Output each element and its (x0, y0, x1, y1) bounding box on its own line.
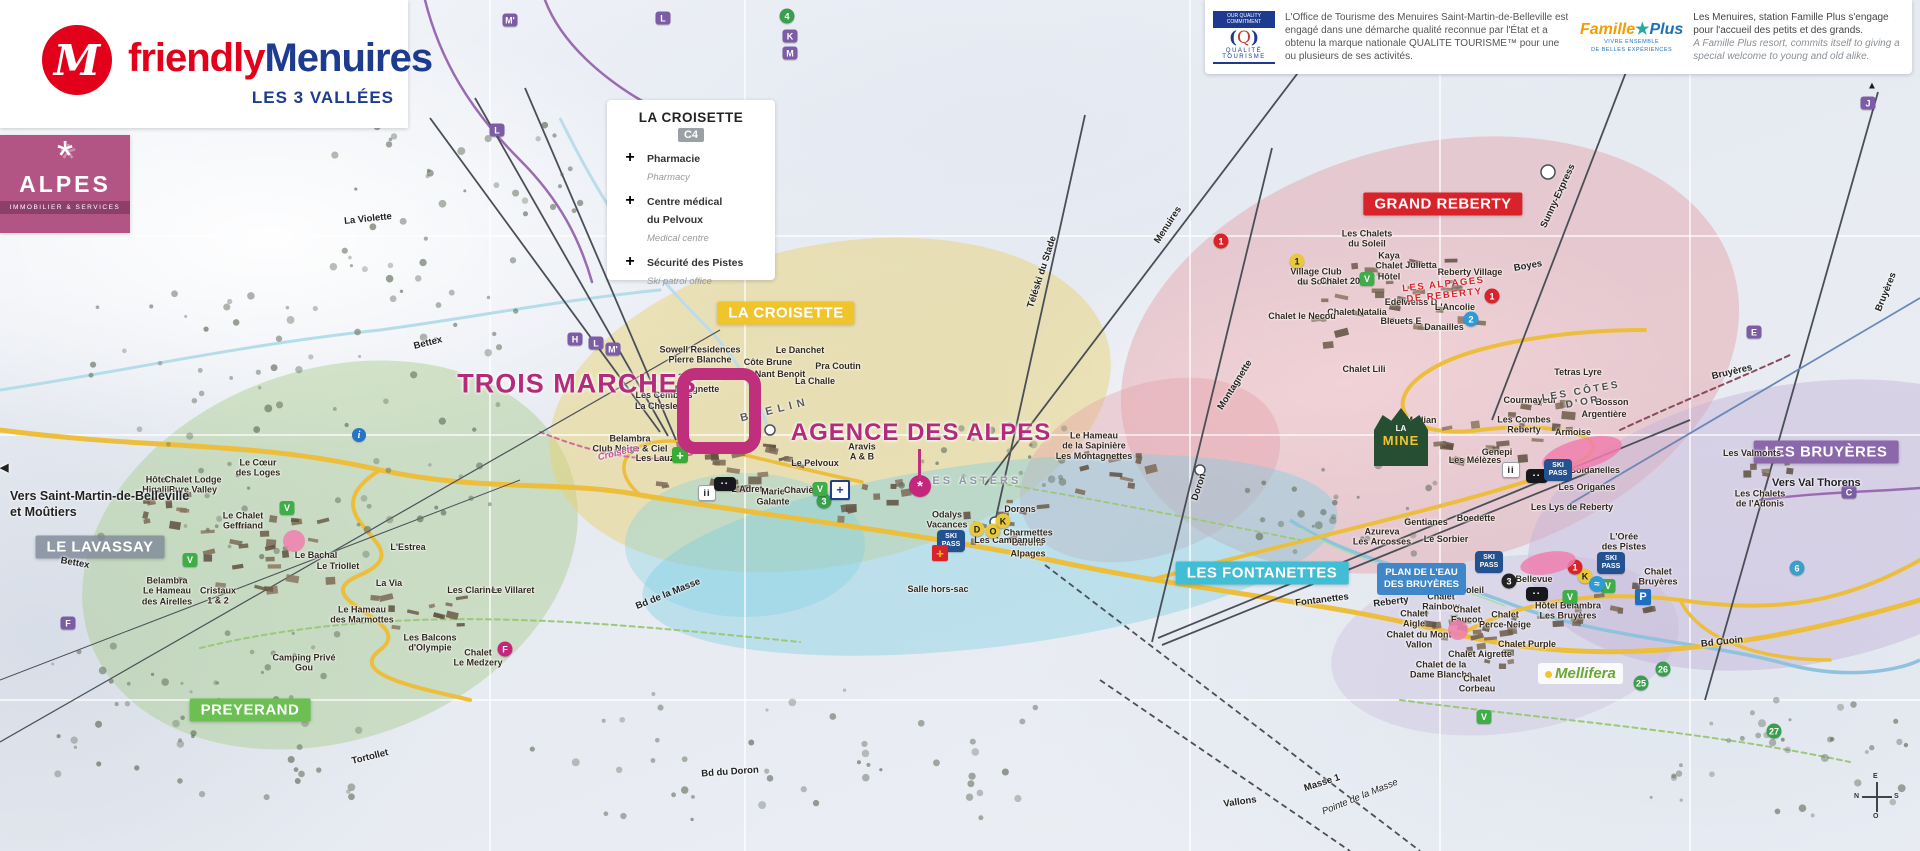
grid-ref-badge: C4 (678, 128, 704, 142)
legend-item-label-fr: Sécurité des Pistes (647, 257, 743, 269)
left-arrow-icon: ◀ (0, 462, 8, 476)
mellifera-logo: Mellifera (1538, 663, 1623, 684)
famille-plus-text-en: A Famille Plus resort, commits itself to… (1693, 38, 1899, 62)
legend-item-icon: + (621, 192, 639, 210)
legend-item: + Sécurité des Pistes Ski patrol office (621, 253, 775, 289)
alpes-subtitle: IMMOBILIER & SERVICES (0, 201, 130, 214)
la-mine-logo: LA MINE (1374, 408, 1428, 466)
wordmark-menuires: Menuires (264, 36, 432, 80)
plan-de-leau-badge: PLAN DE L'EAU DES BRUYÈRES (1377, 563, 1466, 595)
alpes-agency-card: * ALPES IMMOBILIER & SERVICES (0, 135, 130, 233)
direction-val-thorens: Vers Val Thorens (1772, 477, 1861, 491)
famille-plus-logo: Famille★Plus VIVRE ENSEMBLE DE BELLES EX… (1580, 19, 1683, 54)
highlight-trois-marches: TROIS MARCHES (457, 369, 697, 400)
brand-wordmark: friendlyMenuires (128, 36, 432, 81)
legend-item-label-fr: Pharmacie (647, 153, 700, 165)
famille-plus-text-fr: Les Menuires, station Famille Plus s'eng… (1693, 12, 1888, 36)
legend-item: + Centre médical du Pelvoux Medical cent… (621, 192, 775, 246)
famille-plus-star-icon: ★ (1635, 21, 1649, 38)
direction-saint-martin: ◀ Vers Saint-Martin-de-Belleville et Moû… (10, 458, 189, 521)
legend-item-label-en: Medical centre (647, 233, 709, 244)
certification-banner: OUR QUALITY COMMITMENT (Q) QUALITÉ TOURI… (1205, 0, 1912, 74)
famille-plus-plus: Plus (1649, 21, 1683, 38)
qualite-tourisme-wordmark: QUALITÉ TOURISME (1213, 48, 1275, 64)
alpes-snowflake-icon: * (0, 139, 130, 173)
trois-marches-marker (677, 368, 761, 454)
agence-leader-line (918, 449, 921, 479)
famille-plus-text: Les Menuires, station Famille Plus s'eng… (1693, 11, 1904, 63)
legend-title: LA CROISETTE (607, 110, 775, 125)
qualite-tourisme-logo: OUR QUALITY COMMITMENT (Q) QUALITÉ TOURI… (1213, 11, 1275, 64)
highlight-agence-des-alpes: AGENCE DES ALPES (791, 419, 1052, 447)
legend-item: + Pharmacie Pharmacy (621, 149, 775, 185)
menuires-logo-icon: M (42, 25, 112, 95)
legend-item-icon: + (621, 253, 639, 271)
resort-map: LA CROISETTEGRAND REBERTYLES FONTANETTES… (0, 0, 1920, 851)
quality-commitment-badge: OUR QUALITY COMMITMENT (1213, 11, 1275, 28)
qualite-tourisme-icon: (Q) (1213, 28, 1275, 48)
famille-plus-famille: Famille (1580, 21, 1635, 38)
legend-item-icon: + (621, 149, 639, 167)
alpes-title: ALPES (0, 173, 130, 196)
brand-card: M friendlyMenuires LES 3 VALLÉES (0, 0, 408, 128)
compass-rose: E O N S (1862, 782, 1892, 812)
legend-item-label-fr: Centre médical du Pelvoux (647, 196, 722, 226)
famille-plus-tagline: VIVRE ENSEMBLE DE BELLES EXPÉRIENCES (1580, 39, 1683, 54)
legend-item-label-en: Pharmacy (647, 172, 690, 183)
legend-items: + Pharmacie Pharmacy + Centre médical du… (607, 149, 775, 289)
legend-item-label-en: Ski patrol office (647, 276, 712, 287)
les-3-vallees-label: LES 3 VALLÉES (252, 88, 394, 108)
wordmark-friendly: friendly (128, 36, 264, 80)
legend-card: LA CROISETTE C4 + Pharmacie Pharmacy + C… (607, 100, 775, 280)
mellifera-dot-icon (1545, 671, 1552, 678)
qualite-tourisme-text: L'Office de Tourisme des Menuires Saint-… (1285, 11, 1570, 63)
